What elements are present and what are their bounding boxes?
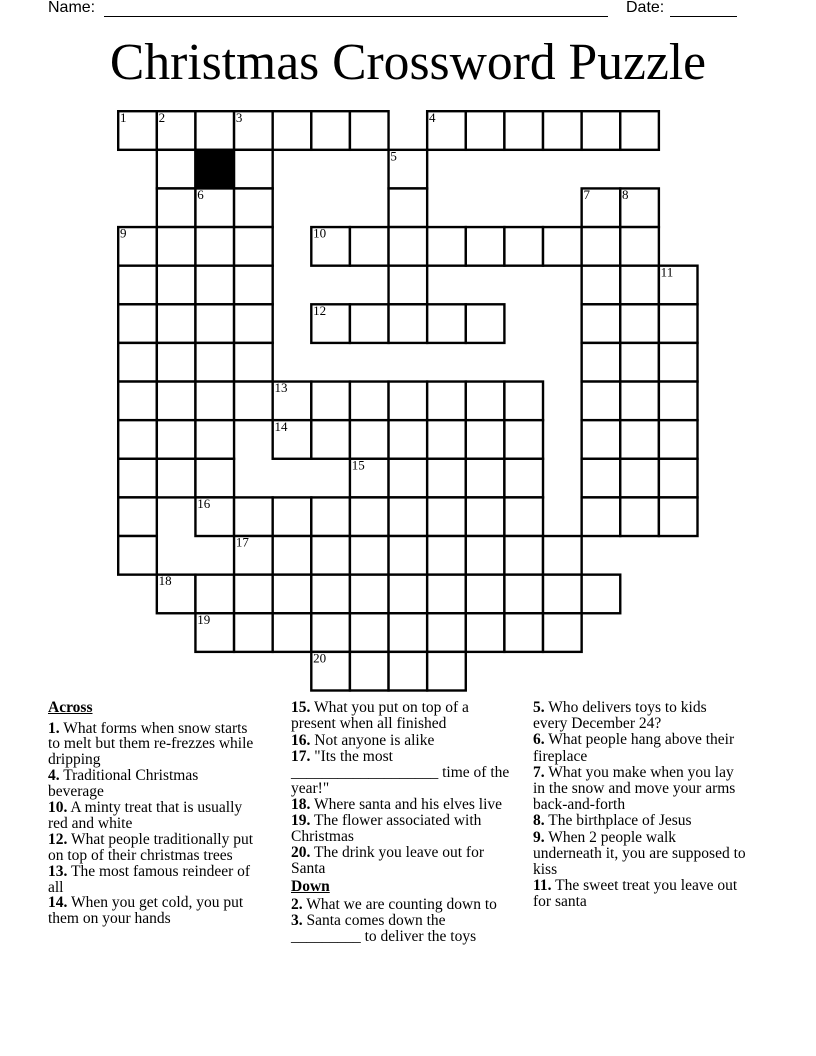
svg-text:20: 20 <box>313 650 326 665</box>
svg-text:6: 6 <box>197 187 204 202</box>
svg-text:17: 17 <box>236 535 250 550</box>
svg-text:11: 11 <box>661 264 674 279</box>
svg-text:5: 5 <box>390 148 397 163</box>
svg-text:7: 7 <box>583 187 590 202</box>
svg-text:2: 2 <box>159 110 166 125</box>
svg-text:9: 9 <box>120 226 127 241</box>
svg-text:4: 4 <box>429 110 436 125</box>
svg-text:3: 3 <box>236 110 243 125</box>
svg-text:15: 15 <box>352 457 365 472</box>
svg-text:1: 1 <box>120 110 127 125</box>
svg-text:8: 8 <box>622 187 629 202</box>
svg-text:18: 18 <box>159 573 172 588</box>
svg-text:16: 16 <box>197 496 211 511</box>
svg-text:12: 12 <box>313 303 326 318</box>
svg-text:10: 10 <box>313 226 326 241</box>
svg-text:19: 19 <box>197 612 210 627</box>
svg-text:13: 13 <box>274 380 287 395</box>
svg-text:14: 14 <box>274 419 288 434</box>
